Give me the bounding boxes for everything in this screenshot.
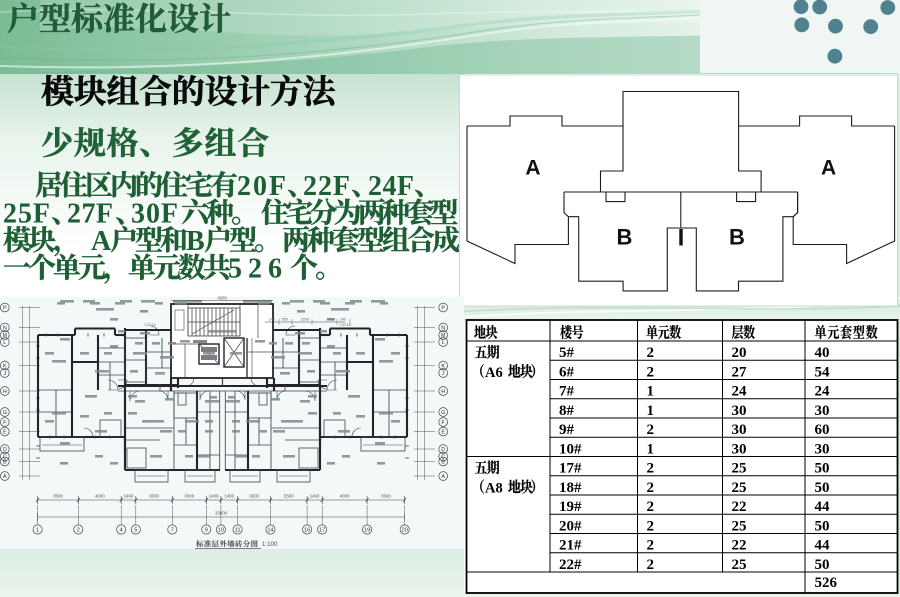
svg-text:16: 16 bbox=[304, 528, 310, 534]
svg-text:1400: 1400 bbox=[209, 494, 219, 499]
svg-text:B: B bbox=[3, 460, 7, 466]
svg-text:50: 50 bbox=[815, 557, 830, 573]
svg-text:25: 25 bbox=[732, 461, 747, 477]
svg-text:1: 1 bbox=[36, 528, 39, 534]
svg-text:2: 2 bbox=[647, 364, 655, 380]
svg-text:50: 50 bbox=[815, 480, 830, 496]
svg-text:22: 22 bbox=[732, 538, 747, 554]
svg-text:30F: 30F bbox=[131, 198, 178, 229]
svg-text:P: P bbox=[441, 306, 445, 312]
svg-text:25: 25 bbox=[732, 557, 747, 573]
svg-text:10#: 10# bbox=[559, 441, 582, 457]
svg-text:H: H bbox=[441, 389, 445, 395]
svg-text:526: 526 bbox=[815, 575, 838, 591]
svg-text:4000: 4000 bbox=[95, 494, 105, 499]
svg-text:30: 30 bbox=[815, 403, 830, 419]
svg-text:1: 1 bbox=[647, 384, 655, 400]
svg-text:B: B bbox=[441, 460, 445, 466]
svg-text:526: 526 bbox=[228, 253, 282, 284]
svg-text:20F: 20F bbox=[237, 171, 286, 202]
svg-text:54: 54 bbox=[815, 364, 831, 380]
svg-text:27: 27 bbox=[732, 364, 748, 380]
svg-text:L: L bbox=[442, 340, 445, 346]
svg-text:20#: 20# bbox=[559, 518, 582, 534]
svg-text:7#: 7# bbox=[559, 384, 575, 400]
svg-text:2: 2 bbox=[647, 538, 655, 554]
svg-text:33600: 33600 bbox=[215, 511, 228, 516]
svg-text:L: L bbox=[3, 340, 6, 346]
svg-text:550: 550 bbox=[282, 318, 288, 322]
svg-text:E: E bbox=[441, 430, 445, 436]
svg-text:17#: 17# bbox=[559, 461, 582, 477]
svg-text:240: 240 bbox=[269, 318, 275, 322]
svg-text:2: 2 bbox=[647, 518, 655, 534]
svg-text:25: 25 bbox=[732, 480, 747, 496]
svg-text:21#: 21# bbox=[559, 538, 582, 554]
svg-text:24: 24 bbox=[815, 384, 831, 400]
svg-text:A: A bbox=[91, 226, 112, 257]
svg-text:2: 2 bbox=[77, 528, 80, 534]
svg-text:1400: 1400 bbox=[124, 494, 134, 499]
svg-text:1: 1 bbox=[647, 403, 655, 419]
svg-text:6#: 6# bbox=[559, 364, 575, 380]
svg-text:44: 44 bbox=[815, 538, 831, 554]
svg-text:2: 2 bbox=[647, 422, 655, 438]
svg-text:20: 20 bbox=[402, 528, 408, 534]
svg-text:44: 44 bbox=[815, 499, 831, 515]
svg-text:5: 5 bbox=[134, 528, 137, 534]
svg-text:3500: 3500 bbox=[53, 494, 63, 499]
svg-text:50: 50 bbox=[815, 518, 830, 534]
svg-text:17: 17 bbox=[319, 528, 325, 534]
svg-text:5500: 5500 bbox=[284, 494, 294, 499]
svg-text:19#: 19# bbox=[559, 499, 582, 515]
svg-text:9#: 9# bbox=[559, 422, 575, 438]
svg-text:3500: 3500 bbox=[381, 494, 391, 499]
svg-text:1400: 1400 bbox=[310, 494, 320, 499]
svg-text:18#: 18# bbox=[559, 480, 582, 496]
svg-text:22#: 22# bbox=[559, 557, 582, 573]
svg-text:2: 2 bbox=[647, 345, 655, 361]
svg-text:A: A bbox=[441, 474, 445, 480]
svg-text:14: 14 bbox=[267, 528, 273, 534]
svg-text:3000: 3000 bbox=[149, 494, 159, 499]
svg-text:9: 9 bbox=[205, 528, 208, 534]
svg-text:1:100: 1:100 bbox=[262, 541, 278, 548]
svg-text:1: 1 bbox=[647, 441, 655, 457]
svg-text:60: 60 bbox=[815, 422, 830, 438]
svg-text:G: G bbox=[3, 410, 7, 416]
svg-text:2: 2 bbox=[647, 480, 655, 496]
svg-text:4000: 4000 bbox=[340, 494, 350, 499]
svg-text:J: J bbox=[442, 371, 445, 377]
svg-text:22: 22 bbox=[732, 499, 747, 515]
svg-text:30: 30 bbox=[815, 441, 830, 457]
svg-text:24: 24 bbox=[732, 384, 748, 400]
svg-text:25: 25 bbox=[732, 518, 747, 534]
svg-text:27F: 27F bbox=[67, 198, 113, 229]
svg-text:4500: 4500 bbox=[217, 296, 227, 301]
svg-text:B: B bbox=[186, 226, 205, 257]
svg-text:240: 240 bbox=[340, 318, 346, 322]
svg-text:7: 7 bbox=[171, 528, 174, 534]
svg-text:30: 30 bbox=[732, 422, 747, 438]
svg-text:700: 700 bbox=[327, 318, 333, 322]
svg-text:50: 50 bbox=[815, 461, 830, 477]
svg-text:2: 2 bbox=[647, 557, 655, 573]
svg-text:G: G bbox=[441, 410, 445, 416]
svg-text:10: 10 bbox=[218, 528, 224, 534]
svg-text:40: 40 bbox=[815, 345, 830, 361]
svg-text:19: 19 bbox=[364, 528, 370, 534]
svg-text:C2214: C2214 bbox=[144, 323, 155, 327]
svg-text:B: B bbox=[729, 225, 745, 250]
svg-text:P: P bbox=[3, 306, 7, 312]
svg-text:A: A bbox=[525, 157, 540, 180]
svg-text:A: A bbox=[821, 157, 836, 180]
svg-text:B: B bbox=[617, 225, 633, 250]
svg-text:E: E bbox=[3, 430, 7, 436]
svg-text:2: 2 bbox=[647, 499, 655, 515]
svg-text:H: H bbox=[3, 389, 7, 395]
svg-text:A8: A8 bbox=[485, 480, 503, 496]
svg-text:A6: A6 bbox=[485, 365, 503, 381]
svg-text:3000: 3000 bbox=[184, 494, 194, 499]
svg-text:1400: 1400 bbox=[224, 494, 234, 499]
svg-text:25F: 25F bbox=[3, 198, 50, 229]
svg-text:C2214: C2214 bbox=[339, 323, 350, 327]
svg-text:4: 4 bbox=[120, 528, 123, 534]
svg-text:2200: 2200 bbox=[301, 318, 309, 322]
svg-text:24F: 24F bbox=[368, 171, 414, 202]
svg-text:30: 30 bbox=[732, 403, 747, 419]
svg-text:3000: 3000 bbox=[249, 494, 259, 499]
svg-text:J: J bbox=[3, 371, 6, 377]
svg-text:20: 20 bbox=[732, 345, 747, 361]
svg-text:A: A bbox=[3, 474, 7, 480]
svg-text:11: 11 bbox=[235, 528, 241, 534]
svg-text:22F: 22F bbox=[303, 171, 350, 202]
svg-text:5#: 5# bbox=[559, 345, 575, 361]
svg-text:8#: 8# bbox=[559, 403, 575, 419]
svg-text:30: 30 bbox=[732, 441, 747, 457]
svg-text:2: 2 bbox=[647, 461, 655, 477]
